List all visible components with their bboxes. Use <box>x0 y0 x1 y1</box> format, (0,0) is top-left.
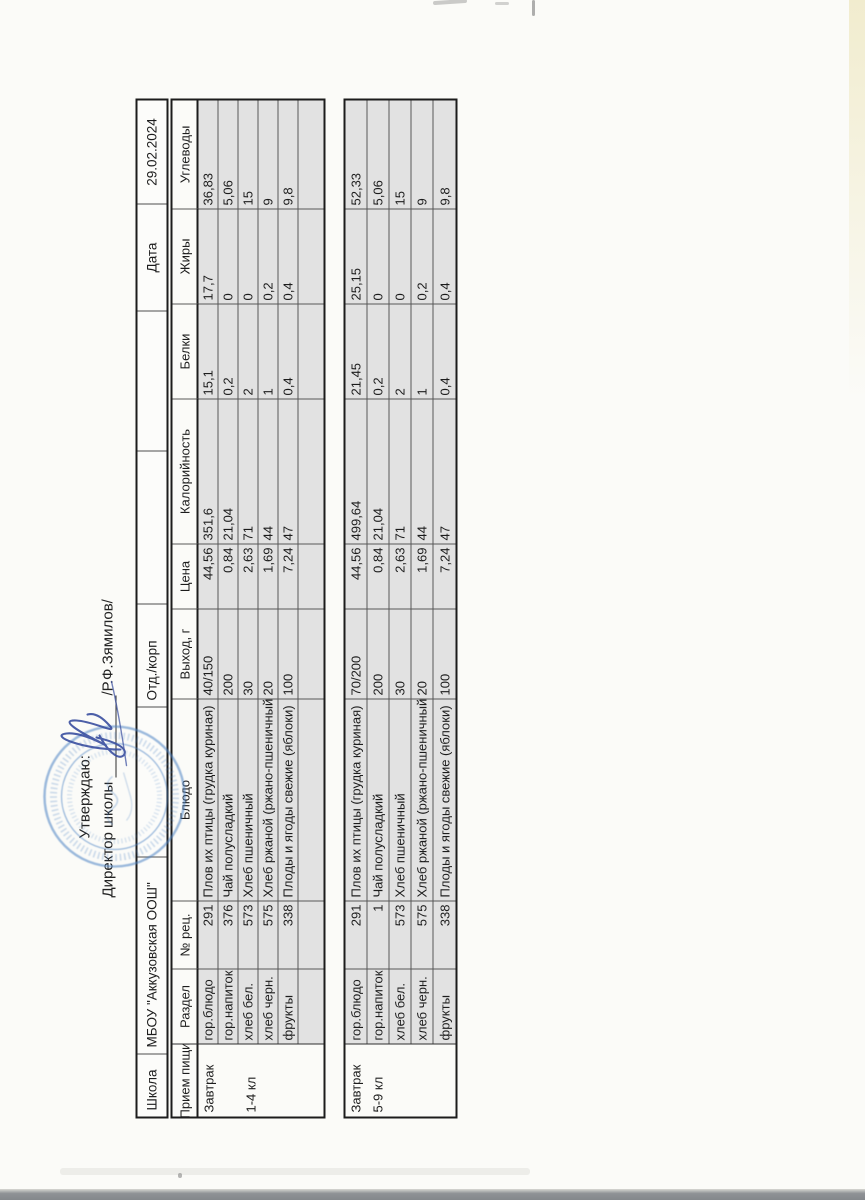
menu-cell: фрукты <box>433 968 455 1043</box>
menu-cell: 0,4 <box>278 303 298 398</box>
column-header-cell: Выход, г <box>172 608 198 698</box>
menu-cell: 20 <box>411 608 433 698</box>
menu-cell: 5,06 <box>218 100 238 208</box>
menu-cell: фрукты <box>278 968 298 1043</box>
menu-cell: Плоды и ягоды свежие (яблоки) <box>433 698 455 900</box>
menu-cell: 47 <box>433 398 455 543</box>
column-header-cell: Углеводы <box>172 100 198 208</box>
menu-cell: 0,4 <box>433 303 455 398</box>
column-header-cell: Прием пищи <box>172 1043 198 1116</box>
menu-cell: Хлеб пшеничный <box>389 698 411 900</box>
menu-cell: 44,56 <box>345 543 367 608</box>
menu-cell: 0,84 <box>367 543 389 608</box>
menu-cell: 338 <box>433 900 455 968</box>
meal-group-cell: Завтрак1-4 кл <box>198 1043 323 1116</box>
meal-name-label: Завтрак <box>349 1064 362 1112</box>
menu-cell: 2 <box>389 303 411 398</box>
menu-cell: хлеб бел. <box>238 968 258 1043</box>
meal-group-cell: Завтрак5-9 кл <box>345 1043 455 1116</box>
info-cell-empty <box>137 450 166 603</box>
menu-table-grades-1-4: Прием пищиРаздел№ рец.БлюдоВыход, гЦенаК… <box>170 98 325 1118</box>
menu-cell <box>298 100 323 208</box>
menu-cell: хлеб черн. <box>411 968 433 1043</box>
info-cell-date-value: 29.02.2024 <box>137 100 166 203</box>
menu-cell: 5,06 <box>367 100 389 208</box>
menu-cell: 70/200 <box>345 608 367 698</box>
menu-cell: 9,8 <box>278 100 298 208</box>
menu-cell: 1,69 <box>411 543 433 608</box>
menu-cell <box>298 900 323 968</box>
menu-cell: 21,45 <box>345 303 367 398</box>
menu-cell: гор.блюдо <box>345 968 367 1043</box>
menu-cell: Хлеб пшеничный <box>238 698 258 900</box>
menu-cell: 44 <box>258 398 278 543</box>
info-cell-school-label: Школа <box>137 1053 166 1116</box>
menu-cell: 44 <box>411 398 433 543</box>
menu-cell: 25,15 <box>345 208 367 303</box>
menu-cell: 1 <box>367 900 389 968</box>
menu-cell: 21,04 <box>218 398 238 543</box>
menu-cell: 21,04 <box>367 398 389 543</box>
menu-cell: 100 <box>278 608 298 698</box>
column-header-cell: Калорийность <box>172 398 198 543</box>
info-cell-date-label: Дата <box>137 203 166 310</box>
menu-cell: Плов их птицы (грудка куриная) <box>198 698 218 900</box>
column-header-cell: № рец. <box>172 900 198 968</box>
scanner-bed-edge <box>0 1189 865 1200</box>
menu-cell: Чай полусладкий <box>367 698 389 900</box>
scan-edge-tint <box>849 0 865 400</box>
menu-cell <box>298 208 323 303</box>
menu-cell: 0 <box>367 208 389 303</box>
menu-cell: гор.напиток <box>218 968 238 1043</box>
menu-cell: 52,33 <box>345 100 367 208</box>
pen-mark <box>532 0 535 16</box>
menu-cell: 0,2 <box>411 208 433 303</box>
menu-table-grades-5-9: Завтрак5-9 клгор.блюдо291Плов их птицы (… <box>343 98 457 1118</box>
menu-cell: 30 <box>389 608 411 698</box>
menu-cell: 2,63 <box>389 543 411 608</box>
menu-cell <box>298 608 323 698</box>
menu-cell: 338 <box>278 900 298 968</box>
menu-cell: 9,8 <box>433 100 455 208</box>
menu-cell: 376 <box>218 900 238 968</box>
menu-cell: 0,4 <box>278 208 298 303</box>
menu-cell: 100 <box>433 608 455 698</box>
menu-cell: 1 <box>411 303 433 398</box>
menu-cell <box>298 968 323 1043</box>
signature-ink <box>36 668 134 780</box>
menu-cell: Чай полусладкий <box>218 698 238 900</box>
menu-cell: 0,4 <box>433 208 455 303</box>
menu-cell: гор.напиток <box>367 968 389 1043</box>
menu-cell: 2,63 <box>238 543 258 608</box>
menu-cell: 9 <box>411 100 433 208</box>
pen-mark <box>495 2 509 5</box>
meal-name-label: Завтрак <box>202 1064 215 1112</box>
menu-cell: гор.блюдо <box>198 968 218 1043</box>
column-header-cell: Белки <box>172 303 198 398</box>
menu-cell <box>298 398 323 543</box>
menu-cell: 575 <box>411 900 433 968</box>
menu-cell: хлеб бел. <box>389 968 411 1043</box>
menu-cell <box>298 698 323 900</box>
menu-cell: 0,2 <box>218 303 238 398</box>
menu-cell: 573 <box>389 900 411 968</box>
menu-cell: 36,83 <box>198 100 218 208</box>
menu-cell: 71 <box>389 398 411 543</box>
menu-cell: 7,24 <box>433 543 455 608</box>
menu-cell: 1 <box>258 303 278 398</box>
menu-cell: 573 <box>238 900 258 968</box>
menu-cell <box>298 543 323 608</box>
info-cell-branch-label: Отд./корп <box>137 603 166 706</box>
menu-cell: 1,69 <box>258 543 278 608</box>
menu-cell: 71 <box>238 398 258 543</box>
menu-cell: Хлеб ржаной (ржано-пшеничный) <box>411 698 433 900</box>
menu-cell: 2 <box>238 303 258 398</box>
rotated-document: Утверждаю: Директор школы /Р.Ф.Зямилов/ <box>0 0 865 1200</box>
menu-cell: 291 <box>345 900 367 968</box>
menu-cell: 0,2 <box>367 303 389 398</box>
menu-cell: 40/150 <box>198 608 218 698</box>
scanned-page: Утверждаю: Директор школы /Р.Ф.Зямилов/ <box>0 0 865 1200</box>
menu-cell: 0 <box>238 208 258 303</box>
menu-cell: 575 <box>258 900 278 968</box>
pencil-smudge <box>60 1168 530 1175</box>
menu-cell: хлеб черн. <box>258 968 278 1043</box>
menu-cell: 44,56 <box>198 543 218 608</box>
info-cell-empty <box>137 310 166 450</box>
menu-cell: 0 <box>218 208 238 303</box>
menu-cell: 0,2 <box>258 208 278 303</box>
menu-cell: 15 <box>389 100 411 208</box>
menu-cell: 291 <box>198 900 218 968</box>
column-header-cell: Жиры <box>172 208 198 303</box>
grade-range-label: 1-4 кл <box>244 1076 257 1112</box>
menu-cell: 0,84 <box>218 543 238 608</box>
menu-cell: 200 <box>367 608 389 698</box>
menu-cell: 15,1 <box>198 303 218 398</box>
column-header-cell: Раздел <box>172 968 198 1043</box>
menu-cell: Хлеб ржаной (ржано-пшеничный) <box>258 698 278 900</box>
menu-cell: 499,64 <box>345 398 367 543</box>
menu-cell: 0 <box>389 208 411 303</box>
menu-cell: Плов их птицы (грудка куриная) <box>345 698 367 900</box>
menu-cell: 7,24 <box>278 543 298 608</box>
menu-cell: 47 <box>278 398 298 543</box>
grade-range-label: 5-9 кл <box>371 1076 384 1112</box>
menu-cell <box>298 303 323 398</box>
menu-cell: 351,6 <box>198 398 218 543</box>
info-cell-school-name: МБОУ "Аккузовская ООШ" <box>137 856 166 1053</box>
info-row: Школа МБОУ "Аккузовская ООШ" Отд./корп Д… <box>135 98 168 1118</box>
menu-cell: 200 <box>218 608 238 698</box>
menu-cell: 30 <box>238 608 258 698</box>
column-header-cell: Цена <box>172 543 198 608</box>
menu-cell: 20 <box>258 608 278 698</box>
menu-cell: 9 <box>258 100 278 208</box>
menu-cell: 15 <box>238 100 258 208</box>
menu-cell: Плоды и ягоды свежие (яблоки) <box>278 698 298 900</box>
menu-cell: 17,7 <box>198 208 218 303</box>
